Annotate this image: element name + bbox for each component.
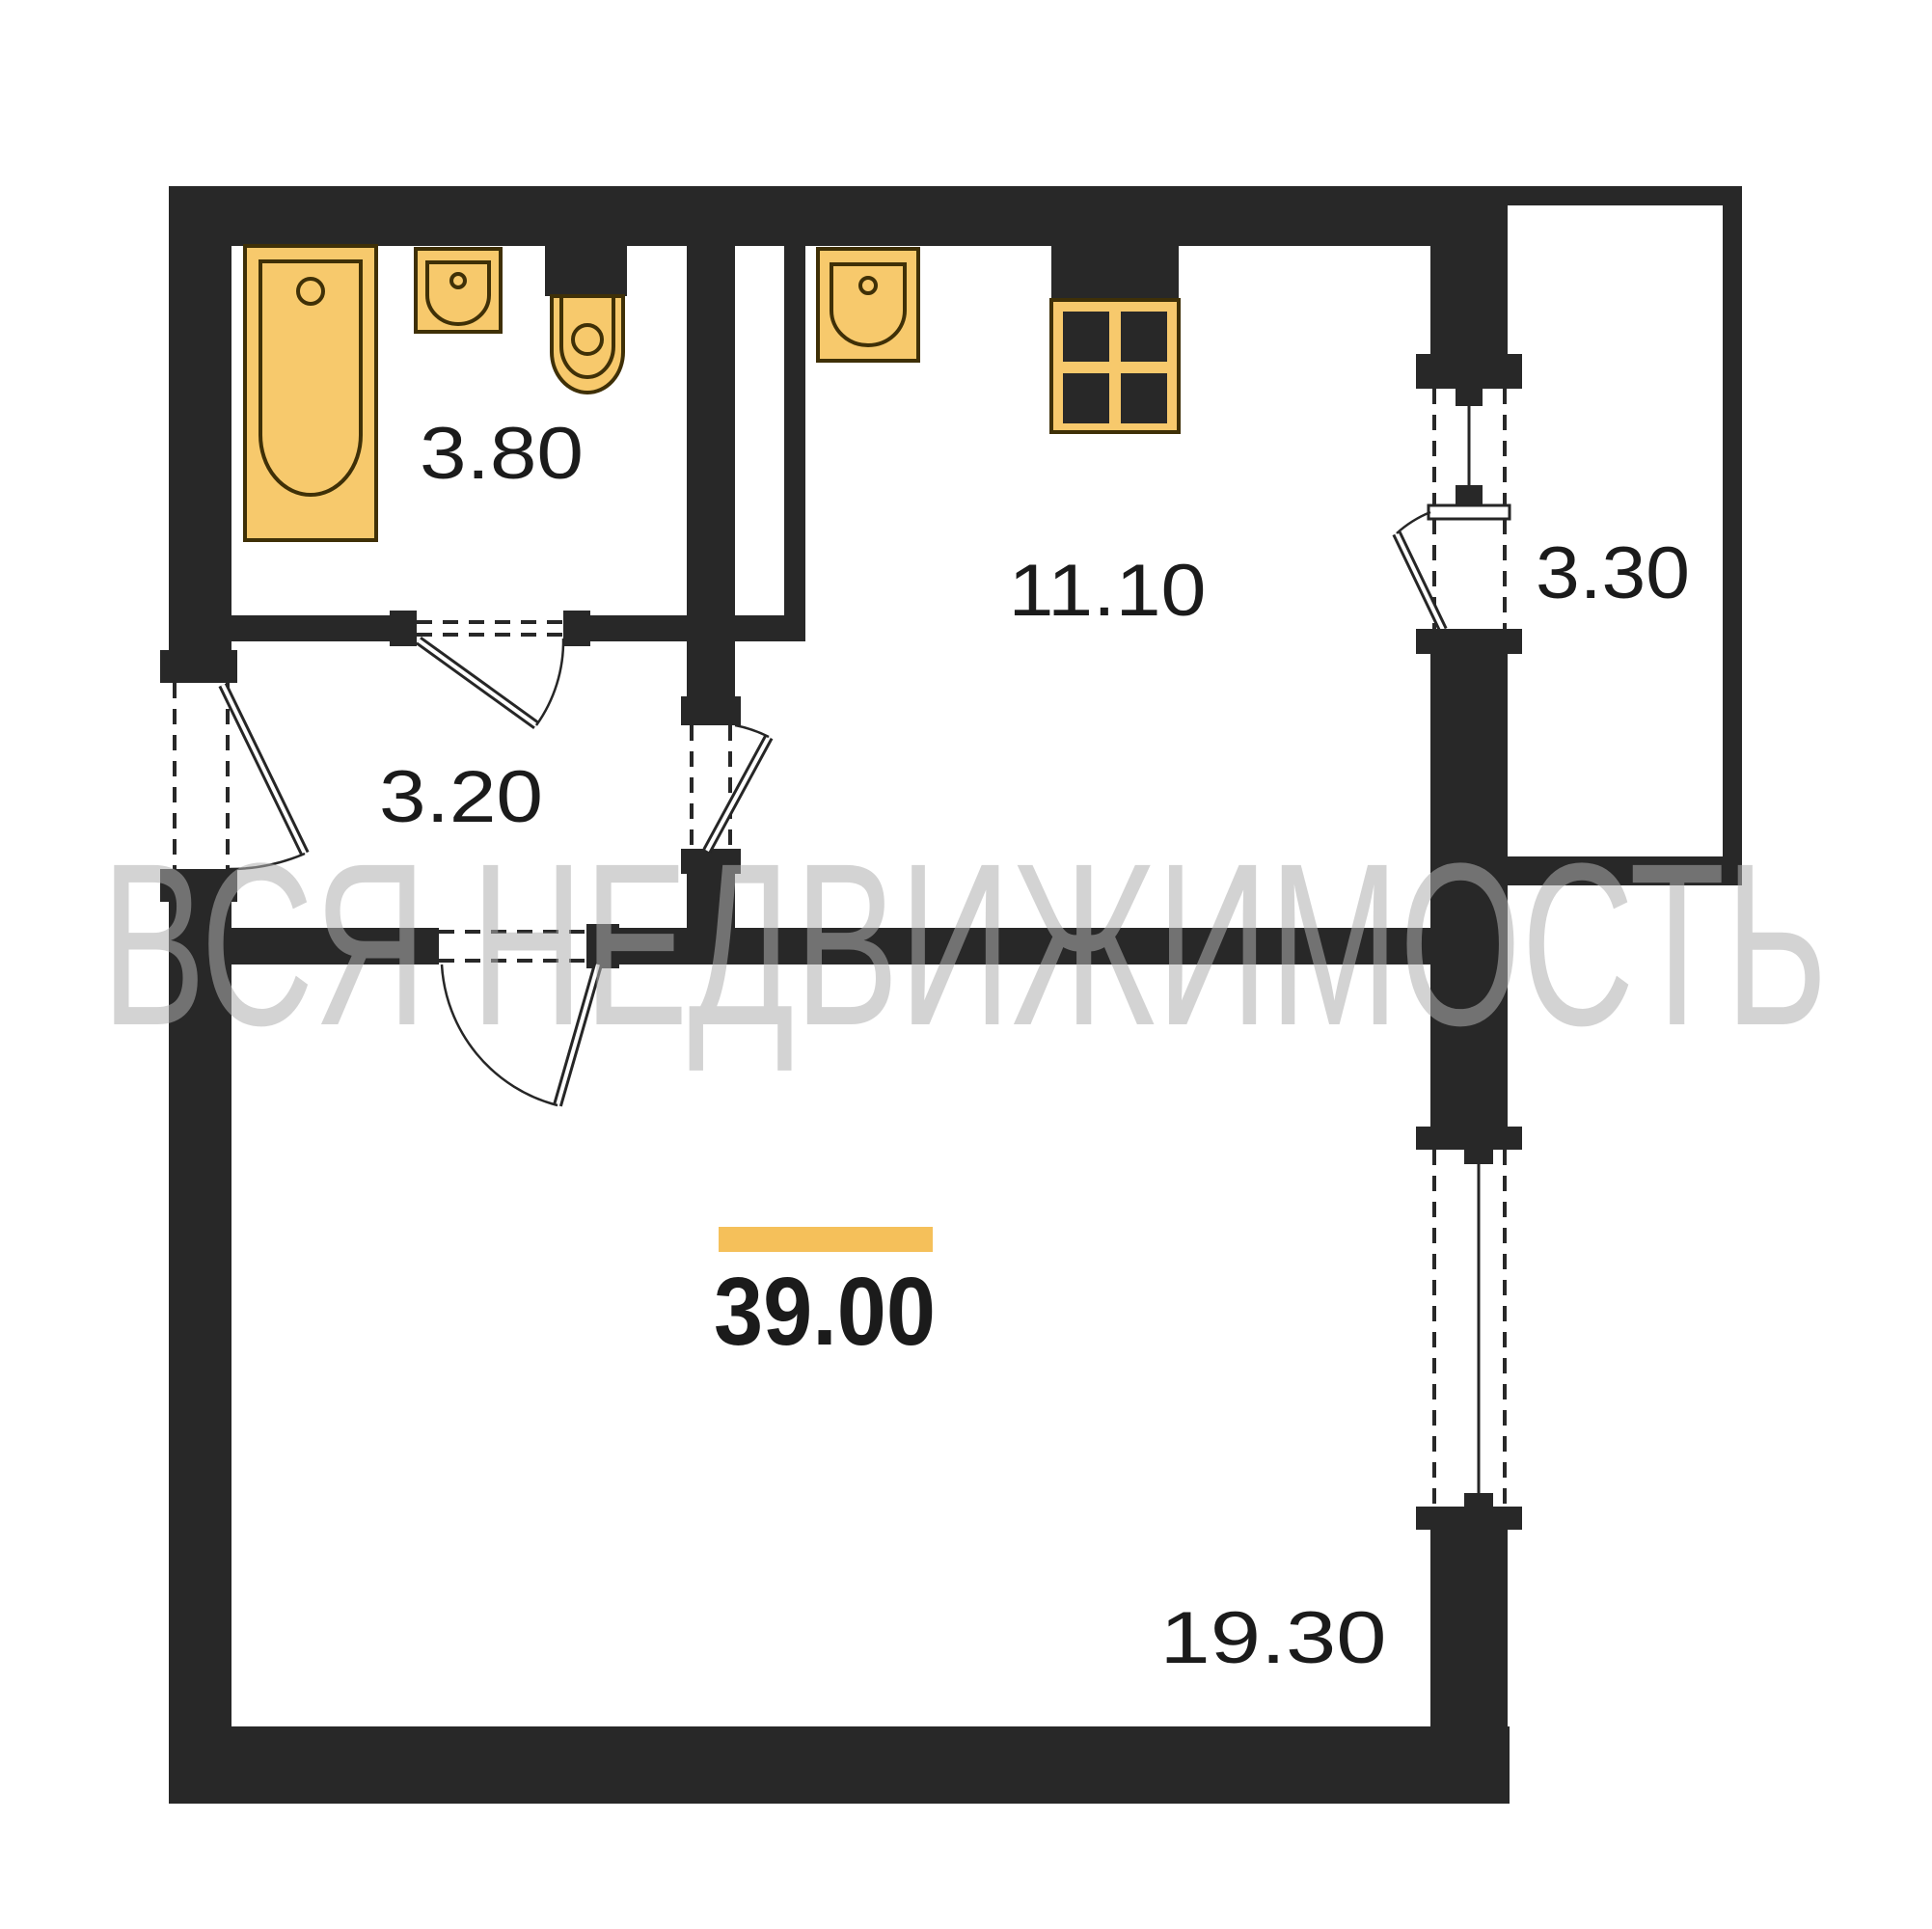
bathroom-area-label: 3.80 <box>420 413 584 495</box>
door-jamb <box>563 611 590 646</box>
kitchen-sink-icon <box>818 249 918 361</box>
kitchen-fixtures <box>818 246 1179 432</box>
wall-top <box>169 186 1508 246</box>
door-jamb <box>390 611 417 646</box>
living-room-area-label: 19.30 <box>1160 1597 1387 1679</box>
wall-bottom <box>169 1726 1510 1804</box>
total-area-accent-bar <box>719 1227 933 1252</box>
kitchen-area-label: 11.10 <box>1009 550 1207 632</box>
window-sill <box>1416 1507 1522 1530</box>
window-sill <box>1416 1127 1522 1150</box>
window-pivot <box>1464 1149 1493 1164</box>
toilet-icon <box>545 246 627 393</box>
bathroom-fixtures <box>245 246 627 540</box>
watermark: ВСЯ НЕДВИЖИМОСТЬ <box>101 815 1828 1073</box>
total-area-label: 39.00 <box>714 1258 936 1366</box>
wall-balcony-right <box>1723 186 1742 885</box>
bathroom-door <box>390 611 590 725</box>
bathtub-icon <box>245 246 376 540</box>
balcony-door <box>1397 354 1522 654</box>
window-crossbar <box>1429 505 1510 519</box>
door-jamb <box>681 696 741 725</box>
window-sill <box>1416 354 1522 389</box>
door-jamb <box>160 650 237 683</box>
wall-right-upper <box>1430 246 1508 354</box>
window-pivot <box>1456 485 1483 506</box>
wall-bathroom-right <box>687 246 735 696</box>
living-room-window <box>1416 1127 1522 1530</box>
floor-plan: 3.80 3.20 11.10 3.30 19.30 39.00 ВСЯ НЕД… <box>0 0 1932 1929</box>
window-sill <box>1416 629 1522 654</box>
bathroom-sink-icon <box>416 249 501 332</box>
wall-left-upper <box>169 186 231 683</box>
wall-right-lower <box>1430 1528 1508 1730</box>
wall-bathroom-bottom-left <box>231 615 390 641</box>
window-pivot <box>1456 389 1483 406</box>
wall-kitchen-left <box>784 246 805 641</box>
balcony-area-label: 3.30 <box>1536 532 1690 614</box>
stove-icon <box>1051 246 1179 432</box>
wall-balcony-top <box>1508 186 1742 205</box>
window-pivot <box>1464 1493 1493 1508</box>
